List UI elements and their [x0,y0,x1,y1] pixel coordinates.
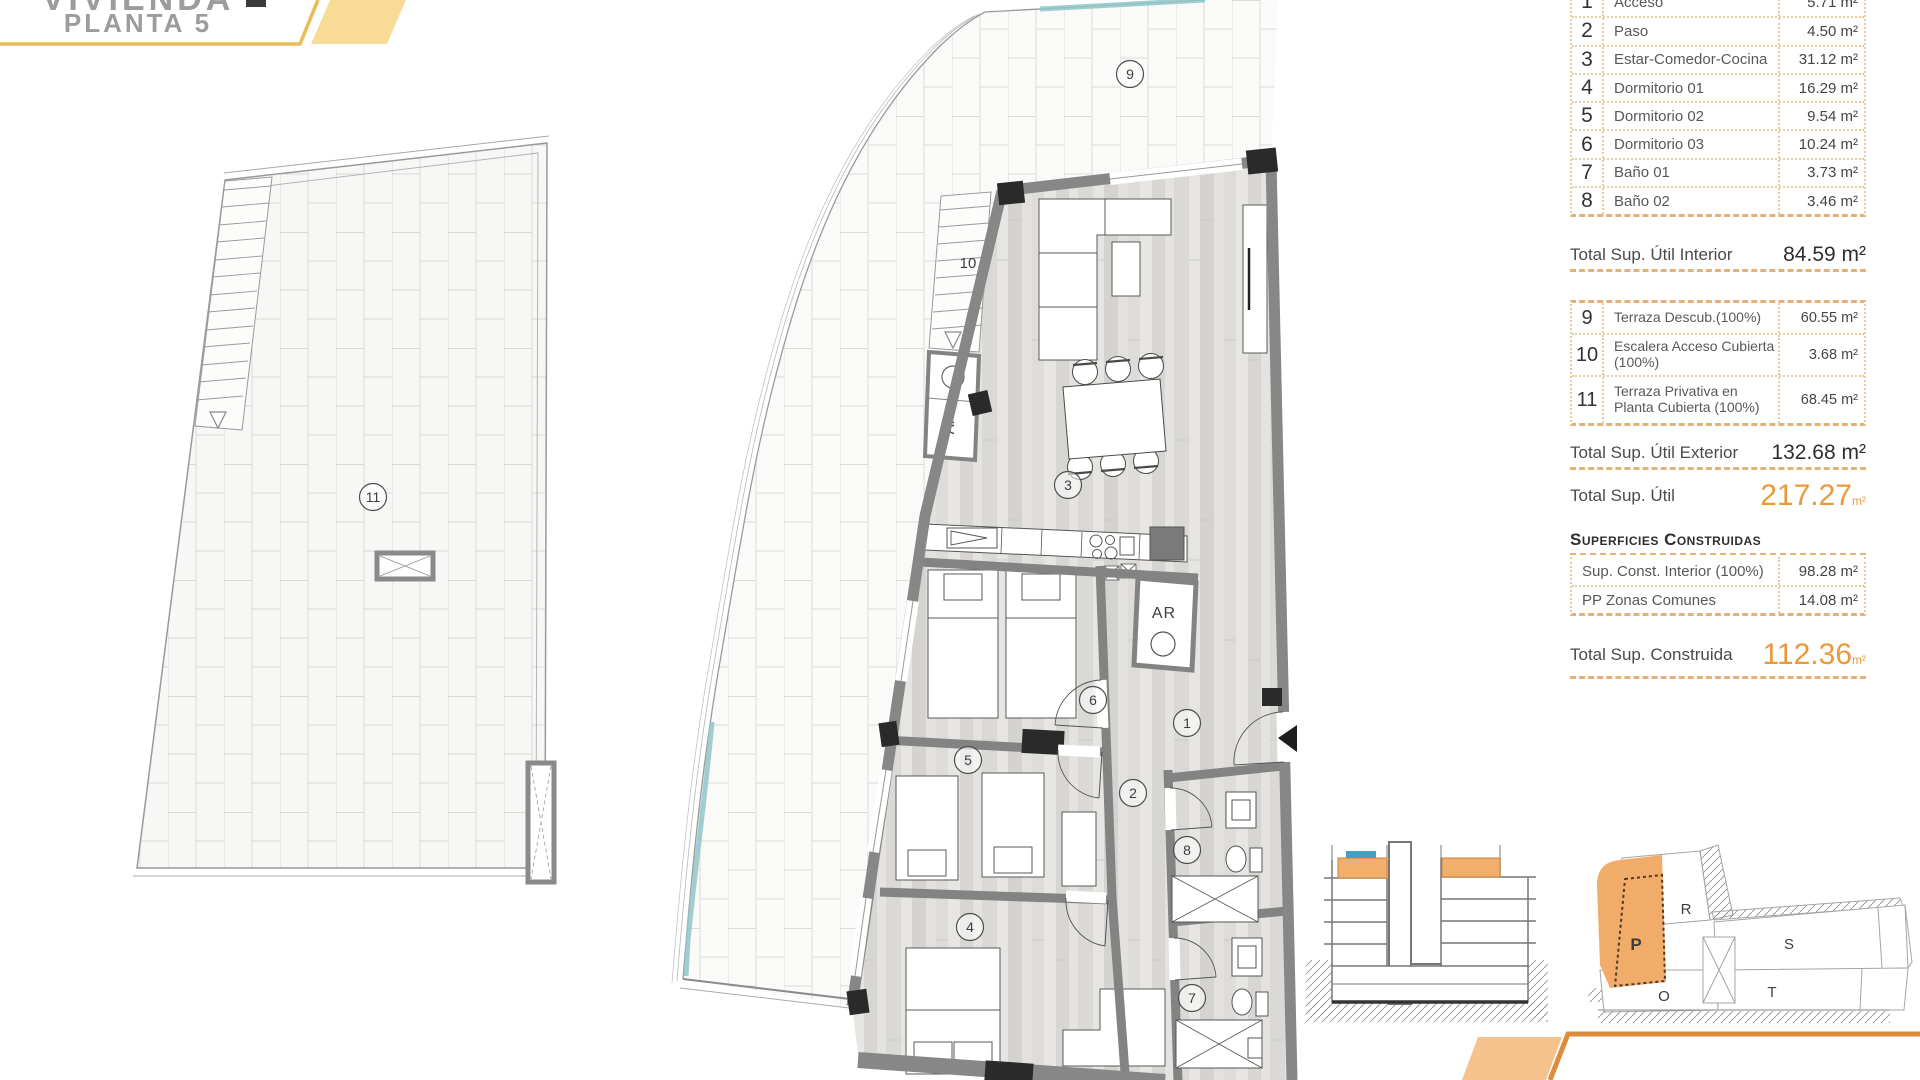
interior-rooms-table: 1 Acceso 5.71 m² 2 Paso 4.50 m² 3 Estar-… [1570,0,1866,217]
dashed-divider [1570,676,1866,679]
row-area: 4.50 m² [1778,18,1864,44]
row-name: Acceso [1602,0,1778,16]
table-row: 4 Dormitorio 01 16.29 m² [1572,73,1864,101]
table-row: Sup. Const. Interior (100%) 98.28 m² [1572,557,1864,585]
table-row: 6 Dormitorio 03 10.24 m² [1572,129,1864,157]
row-num: 3 [1572,48,1602,72]
construidas-table: Sup. Const. Interior (100%) 98.28 m² PP … [1570,557,1866,616]
total-util-interior: Total Sup. Útil Interior 84.59 m² [1570,240,1866,272]
table-row: 9 Terraza Descub.(100%) 60.55 m² [1572,303,1864,333]
site-label-t: T [1767,984,1776,1001]
total-label: Total Sup. Construida [1570,645,1733,665]
floorplan-sheet: { "title": { "line1": "VIVIENDA", "line2… [0,0,1920,1080]
row-area: 14.08 m² [1778,587,1864,613]
row-name: PP Zonas Comunes [1572,587,1778,613]
row-num: 7 [1572,161,1602,185]
total-value: 217.27 [1760,479,1852,512]
total-value-orange: 112.36m² [1762,638,1866,672]
row-name: Estar-Comedor-Cocina [1602,47,1778,73]
row-name: Dormitorio 02 [1602,103,1778,129]
row-num: 1 [1572,0,1602,14]
row-area: 9.54 m² [1778,103,1864,129]
table-row: 1 Acceso 5.71 m² [1572,0,1864,16]
superficies-construidas-header: Superficies Construidas [1570,527,1866,555]
row-num: 4 [1572,76,1602,100]
dining-set [1063,354,1166,480]
exterior-rooms-table: 9 Terraza Descub.(100%) 60.55 m² 10 Esca… [1570,300,1866,426]
total-label: Total Sup. Útil Exterior [1570,443,1738,463]
total-value: 132.68 m² [1771,441,1866,465]
roof-plan: 11 [133,136,554,882]
label-8-text: 8 [1183,842,1191,858]
fridge [1150,527,1184,560]
label-3-text: 3 [1064,477,1072,493]
row-num: 2 [1572,19,1602,43]
row-num: 9 [1572,307,1602,330]
row-area: 16.29 m² [1778,75,1864,101]
site-label-s: S [1784,936,1794,953]
label-4-text: 4 [966,919,974,935]
tv-unit [1243,205,1267,353]
row-area: 31.12 m² [1778,47,1864,73]
label-terraza-privativa: 11 [360,484,387,511]
section-highlight-left [1338,858,1387,878]
armario-interior-text: AR [1152,605,1176,622]
row-area: 60.55 m² [1778,303,1864,333]
total-value: 112.36 [1762,638,1852,671]
table-row: 2 Paso 4.50 m² [1572,16,1864,44]
row-num: 10 [1572,344,1602,367]
coffee-table [1112,242,1140,296]
row-area: 3.73 m² [1778,160,1864,186]
row-area: 98.28 m² [1778,557,1864,585]
row-name: Baño 02 [1602,188,1778,214]
row-name: Dormitorio 01 [1602,75,1778,101]
site-label-o: O [1658,988,1670,1005]
roof-duct [528,763,554,882]
total-construida: Total Sup. Construida 112.36m² [1570,636,1866,674]
label-9-text: 9 [1126,66,1134,82]
total-unit: m² [1852,494,1866,508]
table-row: 11 Terraza Privativa en Planta Cubierta … [1572,375,1864,423]
label-11-text: 11 [366,489,381,505]
table-row: 10 Escalera Acceso Cubierta (100%) 3.68 … [1572,333,1864,375]
section-highlight-right [1442,858,1500,877]
total-util-exterior: Total Sup. Útil Exterior 132.68 m² [1570,438,1866,470]
table-row: 3 Estar-Comedor-Cocina 31.12 m² [1572,45,1864,73]
row-area: 5.71 m² [1778,0,1864,16]
site-label-r: R [1681,901,1692,918]
total-unit: m² [1852,653,1866,667]
label-6-text: 6 [1089,692,1097,708]
label-10-text: 10 [960,255,977,272]
title-block: VIVIENDA PLANTA 5 [0,0,276,46]
roof-skylight [377,553,433,579]
row-name: Dormitorio 03 [1602,131,1778,157]
sink [947,528,997,548]
total-value-orange: 217.27m² [1760,479,1866,513]
total-label: Total Sup. Útil Interior [1570,245,1733,265]
site-label-p: P [1630,935,1641,954]
table-row: 7 Baño 01 3.73 m² [1572,158,1864,186]
row-name: Terraza Descub.(100%) [1602,303,1778,333]
section-blue-element [1346,851,1376,858]
label-7-text: 7 [1188,990,1196,1006]
row-num: 5 [1572,104,1602,128]
table-row: PP Zonas Comunes 14.08 m² [1572,585,1864,613]
row-num: 6 [1572,133,1602,157]
row-name: Paso [1602,18,1778,44]
row-name: Baño 01 [1602,160,1778,186]
label-5-text: 5 [964,752,972,768]
row-name: Sup. Const. Interior (100%) [1572,557,1778,585]
apartment-plan: 10 AR [672,0,1297,1080]
table-row: 8 Baño 02 3.46 m² [1572,186,1864,214]
row-name: Terraza Privativa en Planta Cubierta (10… [1602,377,1778,423]
table-row: 5 Dormitorio 02 9.54 m² [1572,101,1864,129]
label-2-text: 2 [1129,785,1137,801]
row-name: Escalera Acceso Cubierta (100%) [1602,335,1778,375]
row-num: 11 [1572,389,1602,412]
row-area: 68.45 m² [1778,377,1864,423]
label-1-text: 1 [1183,715,1191,731]
row-num: 8 [1572,189,1602,213]
section-diagram [1306,842,1548,1022]
dining-table [1063,379,1166,459]
total-util: Total Sup. Útil 217.27m² [1570,477,1866,515]
section-header-text: Superficies Construidas [1570,530,1761,550]
row-area: 3.68 m² [1778,335,1864,375]
total-value: 84.59 m² [1783,243,1866,267]
total-label: Total Sup. Útil [1570,486,1675,506]
site-key-plan: P R S T O [1588,845,1912,1023]
row-area: 10.24 m² [1778,131,1864,157]
row-area: 3.46 m² [1778,188,1864,214]
ribbon-bottom-right [1462,1034,1920,1080]
page-subtitle: PLANTA 5 [0,8,276,39]
title-badge [246,0,266,7]
